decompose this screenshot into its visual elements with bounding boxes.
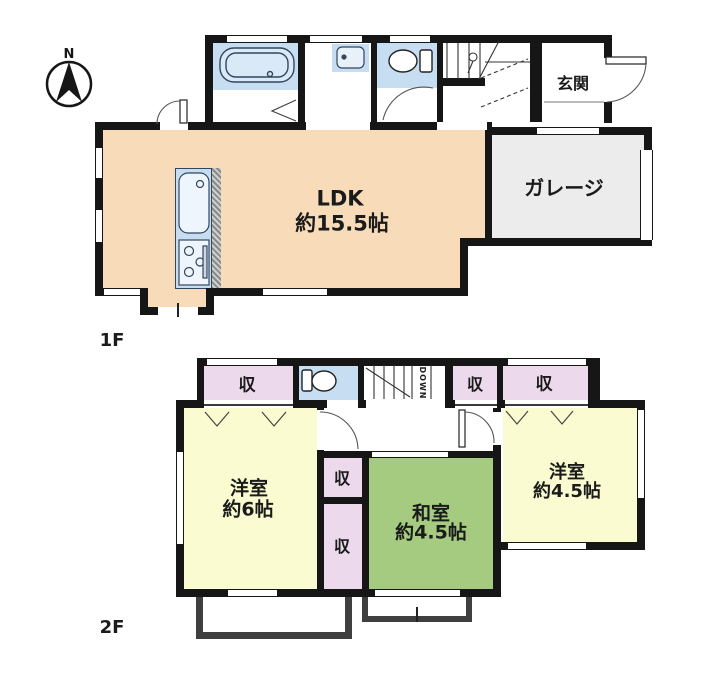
wall: [362, 451, 369, 597]
closet-label: 収: [334, 471, 350, 487]
back-door-icon: [157, 100, 187, 124]
room-label-ldk-size: 約15.5帖: [295, 214, 389, 235]
garage-door: [640, 150, 653, 240]
stairs-down-label: DOWN: [418, 367, 426, 400]
room-label-entrance: 玄関: [557, 76, 589, 92]
room-bathroom: [213, 43, 298, 90]
closet-label: 収: [239, 378, 256, 395]
room-label-japanese-size: 約4.5帖: [395, 524, 467, 543]
window: [390, 35, 430, 43]
room-label-western45-size: 約4.5帖: [533, 483, 601, 501]
window: [263, 288, 327, 296]
closet-door-line: [455, 404, 497, 406]
wall: [371, 43, 377, 122]
window: [228, 589, 277, 597]
room-ldk-lower: [103, 238, 460, 288]
window: [176, 452, 184, 544]
room-label-western45: 洋室: [549, 464, 585, 482]
wall: [437, 78, 485, 86]
closet-label: 収: [536, 377, 553, 394]
window: [104, 288, 140, 296]
balcony-wall: [466, 597, 472, 622]
window: [207, 358, 277, 366]
wall: [293, 400, 327, 408]
window: [227, 35, 287, 43]
door-opening: [306, 122, 370, 130]
vanity-unit: [332, 44, 369, 72]
room-toilet-1f: [377, 43, 437, 88]
wall: [317, 451, 362, 458]
back-door-opening: [158, 307, 198, 315]
balcony-wall: [362, 616, 472, 622]
wall: [497, 400, 505, 408]
sliding-door: [372, 451, 448, 458]
compass-north-label: N: [64, 47, 75, 62]
window: [375, 589, 460, 597]
kitchen-counter: [175, 168, 212, 289]
wall: [460, 238, 468, 296]
floorplan-canvas: LDK 約15.5帖 ガレージ 玄関 1F 洋室 約6帖 和室 約4.5帖 洋室…: [0, 0, 705, 700]
closet-label: 収: [334, 539, 350, 555]
stairs-1f-icon: [447, 41, 530, 107]
floor-label-2f: 2F: [100, 619, 125, 637]
closet-door-line: [204, 404, 293, 406]
wall: [317, 497, 362, 504]
door-icon: [459, 410, 494, 447]
balcony-wall: [196, 632, 352, 639]
wall: [530, 43, 542, 122]
wall: [95, 122, 492, 130]
wall: [298, 43, 305, 122]
window: [637, 410, 645, 498]
door-arc: [383, 87, 433, 120]
wall: [205, 35, 213, 130]
wall: [445, 400, 455, 408]
entrance-door-opening: [604, 58, 612, 102]
wall: [214, 288, 467, 296]
room-toilet-2f: [299, 365, 358, 400]
floor-label-1f: 1F: [100, 332, 125, 350]
door-arc: [320, 412, 358, 449]
balcony-wall: [345, 597, 352, 639]
window: [508, 358, 586, 366]
window: [95, 148, 103, 178]
door-opening: [493, 412, 501, 445]
window: [310, 35, 362, 43]
wall: [460, 238, 652, 246]
window: [537, 127, 599, 135]
room-label-garage: ガレージ: [524, 178, 604, 198]
wall: [358, 400, 366, 408]
room-label-ldk: LDK: [316, 189, 363, 210]
room-label-western6: 洋室: [230, 480, 268, 499]
door-opening: [317, 410, 324, 450]
window: [508, 542, 586, 550]
back-door-opening: [160, 122, 188, 130]
window: [95, 210, 103, 242]
room-ldk: [103, 130, 485, 238]
room-ldk-bumpout: [148, 288, 206, 307]
closet-door-line: [505, 404, 588, 406]
closet-label: 収: [467, 377, 483, 393]
door-opening: [437, 122, 487, 130]
wall: [485, 130, 492, 238]
room-label-western6-size: 約6帖: [222, 501, 273, 520]
entrance-door-icon: [606, 57, 646, 102]
bath-folding-door-icon: [272, 100, 296, 121]
north-compass-icon: N: [47, 47, 91, 106]
kitchen-partition: [212, 168, 221, 289]
